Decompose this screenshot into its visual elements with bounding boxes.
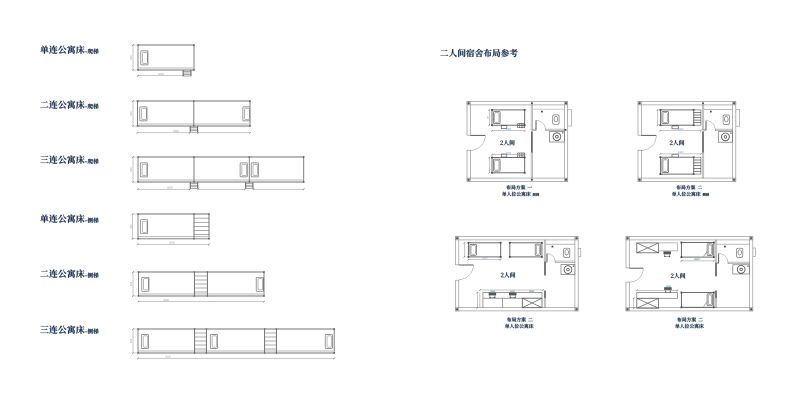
svg-text:900: 900	[130, 55, 133, 60]
svg-text:900: 900	[130, 224, 133, 229]
svg-text:6000: 6000	[167, 187, 173, 190]
svg-text:2000: 2000	[482, 257, 488, 260]
svg-text:900: 900	[130, 111, 133, 116]
svg-text:2000: 2000	[158, 73, 164, 76]
svg-text:6000: 6000	[165, 356, 171, 359]
svg-text:900: 900	[130, 338, 133, 343]
svg-text:4000: 4000	[163, 299, 169, 302]
svg-text:2400: 2400	[678, 151, 684, 154]
svg-text:4000: 4000	[173, 130, 179, 133]
svg-text:2000: 2000	[506, 128, 512, 131]
svg-text:2000: 2000	[678, 128, 684, 131]
svg-text:900: 900	[130, 281, 133, 286]
svg-text:900: 900	[130, 167, 133, 172]
svg-text:2000: 2000	[506, 152, 512, 155]
svg-text:2000: 2000	[169, 242, 175, 245]
